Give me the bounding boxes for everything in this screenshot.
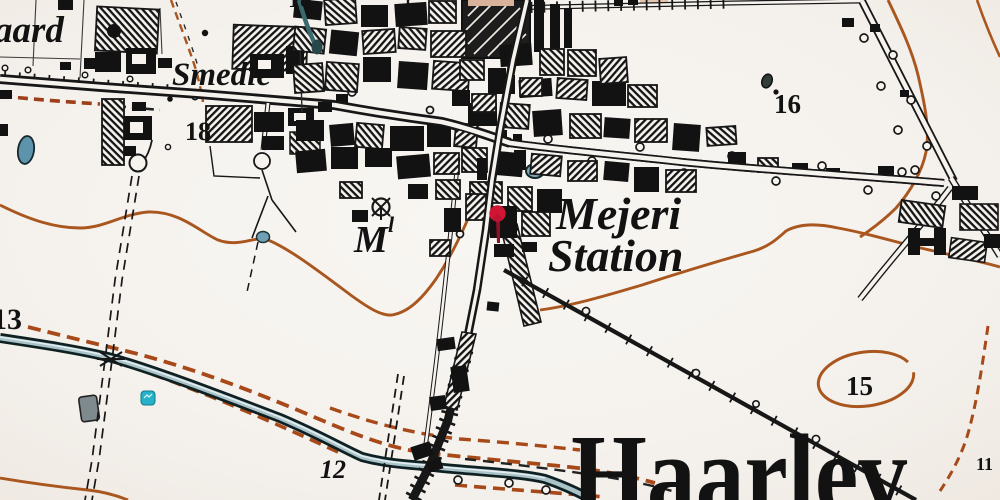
- svg-text:16: 16: [774, 89, 801, 119]
- svg-text:aard: aard: [0, 10, 64, 51]
- svg-text:Smedie: Smedie: [172, 57, 271, 93]
- svg-text:12: 12: [320, 455, 346, 484]
- svg-text:Haarlev: Haarlev: [571, 411, 907, 500]
- svg-text:Station: Station: [548, 230, 684, 281]
- svg-text:M: M: [353, 219, 389, 261]
- svg-text:15: 15: [846, 371, 873, 401]
- svg-text:l: l: [388, 212, 395, 237]
- svg-text:18: 18: [185, 117, 211, 146]
- svg-text:13: 13: [0, 303, 22, 336]
- svg-text:18: 18: [288, 0, 312, 13]
- svg-text:11: 11: [976, 454, 993, 474]
